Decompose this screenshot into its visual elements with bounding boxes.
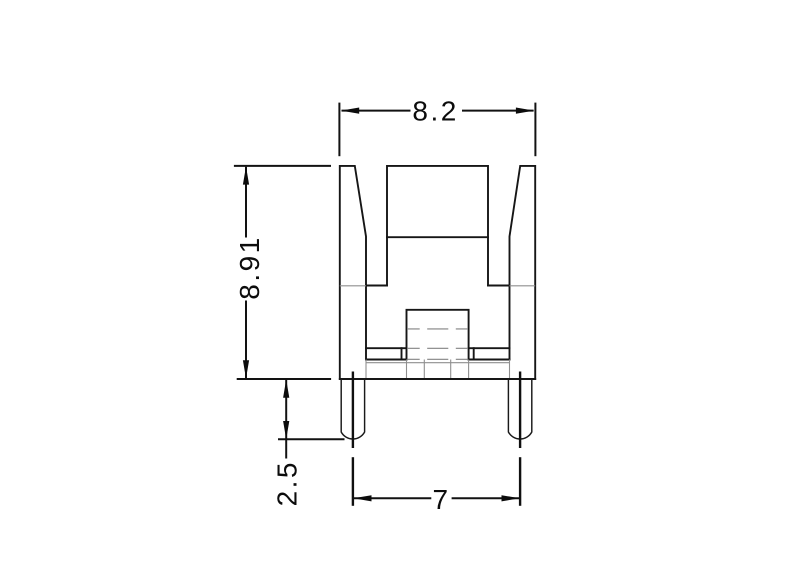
svg-text:2.5: 2.5 — [272, 460, 303, 506]
svg-text:7: 7 — [432, 484, 450, 515]
svg-text:8.91: 8.91 — [234, 235, 265, 300]
svg-text:8.2: 8.2 — [412, 96, 458, 127]
